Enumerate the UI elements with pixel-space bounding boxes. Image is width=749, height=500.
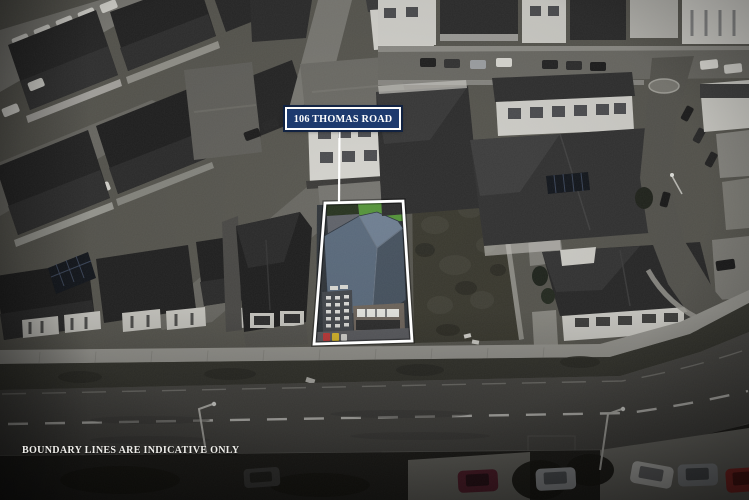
property-address-label: 106 THOMAS ROAD <box>285 107 401 130</box>
aerial-listing-photo: 106 THOMAS ROAD BOUNDARY LINES ARE INDIC… <box>0 0 749 500</box>
aerial-scene <box>0 0 749 500</box>
label-leader-line <box>339 128 340 202</box>
boundary-disclaimer-text: BOUNDARY LINES ARE INDICATIVE ONLY <box>22 445 239 456</box>
property-address-text: 106 THOMAS ROAD <box>294 113 393 125</box>
